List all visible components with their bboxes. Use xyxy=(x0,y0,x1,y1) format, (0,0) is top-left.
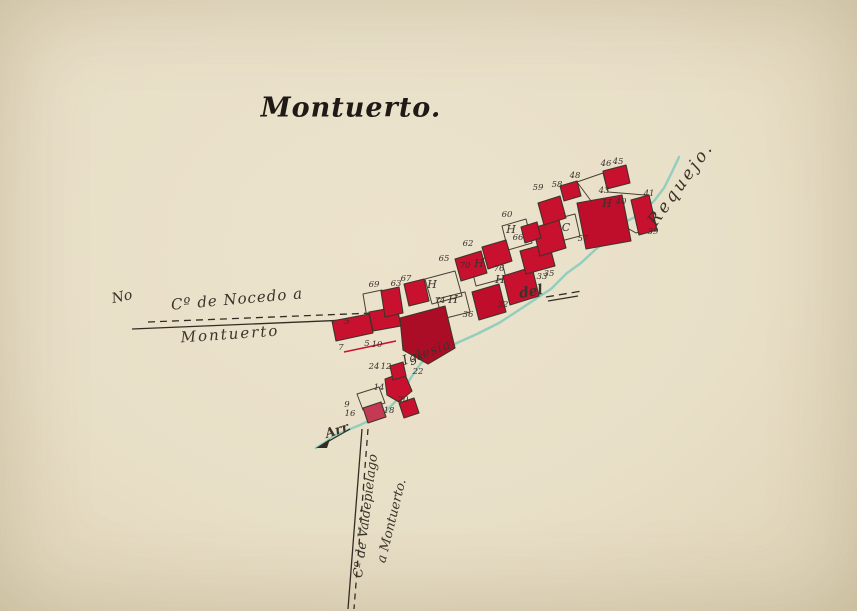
plot-number: 45 xyxy=(612,157,624,167)
plot-number: 48 xyxy=(569,171,581,181)
building xyxy=(390,362,406,380)
camino-valdepielago-solid xyxy=(348,429,362,609)
map-canvas: 4546484341403958595760626566676970766374… xyxy=(0,0,857,611)
plot-number: 18 xyxy=(384,406,395,416)
plot-number: 63 xyxy=(391,279,402,289)
plot-number: 59 xyxy=(533,183,544,193)
plot-number: 24 xyxy=(368,362,380,372)
roads-layer xyxy=(132,291,582,609)
boundary-red-line xyxy=(344,341,396,352)
plot-letter: H xyxy=(426,278,437,291)
camino-east-solid xyxy=(548,296,578,301)
plot-number: 41 xyxy=(643,189,655,199)
plot-number: 43 xyxy=(598,186,610,196)
plot-number: 36 xyxy=(463,310,474,320)
plot-number: 12 xyxy=(381,362,392,372)
plot-letter: H xyxy=(473,257,484,270)
plot-number: 60 xyxy=(502,210,513,220)
plot-number: 46 xyxy=(600,159,612,169)
plot-number: 5 xyxy=(364,339,369,349)
plot-number: 32 xyxy=(498,300,509,310)
plot-number: 26 xyxy=(411,353,423,363)
building xyxy=(400,306,455,364)
plot-number: 14 xyxy=(374,383,385,393)
plot-number: 22 xyxy=(412,367,424,377)
plot-number: 33 xyxy=(537,272,548,282)
plot-letter: C xyxy=(562,221,571,234)
plot-number: 9 xyxy=(344,400,350,410)
plot-number: 40 xyxy=(615,197,627,207)
building xyxy=(332,314,373,341)
plot-letter: H xyxy=(494,273,505,286)
plot-letter: H xyxy=(447,293,458,306)
plot-letter: H xyxy=(505,223,516,236)
plot-number: 74 xyxy=(435,296,446,306)
plot-number: 16 xyxy=(345,409,356,419)
plot-number: 69 xyxy=(369,280,380,290)
plot-number: 67 xyxy=(401,274,412,284)
plot-number: 58 xyxy=(552,180,563,190)
plot-number: 20 xyxy=(397,395,409,405)
plot-number: 7 xyxy=(338,343,344,353)
plot-number: 62 xyxy=(463,239,474,249)
building xyxy=(363,402,386,423)
plot-number: 39 xyxy=(648,227,659,237)
camino-valdepielago-dashed xyxy=(354,429,368,609)
map-svg: 4546484341403958595760626566676970766374… xyxy=(0,0,857,611)
plot-number: 5 xyxy=(344,317,349,327)
building xyxy=(560,181,581,201)
building xyxy=(381,287,403,317)
plot-number: 70 xyxy=(460,261,471,271)
plot-number: 65 xyxy=(439,254,450,264)
plot-letter: H xyxy=(601,197,612,210)
plot-number: 57 xyxy=(578,234,589,244)
plot-number: 10 xyxy=(372,340,383,350)
